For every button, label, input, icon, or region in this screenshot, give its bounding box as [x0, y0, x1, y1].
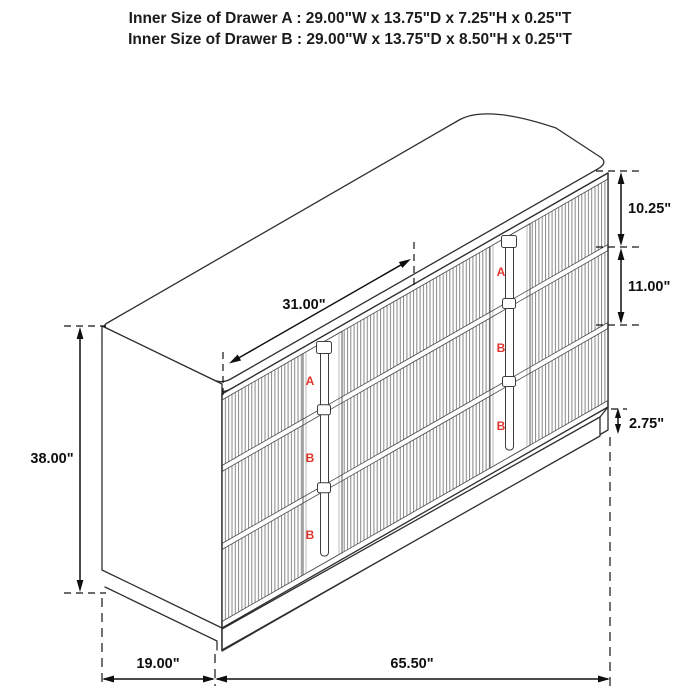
dim-total-width-label: 65.50": [390, 656, 433, 672]
product-dimension-diagram: A B B A B B 31.00" 38.00": [0, 0, 700, 700]
dim-base-height-label: 2.75": [629, 416, 664, 432]
dim-drawer-a-label: 10.25": [628, 201, 671, 217]
handle-joint: [503, 377, 516, 387]
dim-height: 38.00": [30, 326, 106, 593]
drawer-label-right-b2: B: [497, 419, 506, 433]
dim-drawer-b-label: 11.00": [628, 279, 670, 295]
handle-bar-left: [321, 350, 329, 556]
handle-cap: [502, 236, 517, 248]
handle-joint: [318, 483, 331, 493]
dim-top-width-label: 31.00": [282, 297, 325, 313]
handle-joint: [318, 405, 331, 415]
diagram-canvas: A B B A B B 31.00" 38.00": [0, 0, 700, 700]
handle-cap: [317, 342, 332, 354]
header: Inner Size of Drawer A : 29.00"W x 13.75…: [128, 10, 572, 48]
drawer-label-left-a: A: [306, 374, 315, 388]
dim-height-label: 38.00": [30, 451, 73, 467]
handle-bar-right: [506, 244, 514, 450]
dim-depth-label: 19.00": [136, 656, 179, 672]
drawer-label-left-b1: B: [306, 451, 315, 465]
header-drawer-b-size: Inner Size of Drawer B : 29.00"W x 13.75…: [128, 31, 572, 48]
header-drawer-a-size: Inner Size of Drawer A : 29.00"W x 13.75…: [129, 10, 572, 27]
drawer-label-left-b2: B: [306, 528, 315, 542]
drawer-label-right-a: A: [497, 265, 506, 279]
drawer-label-right-b1: B: [497, 341, 506, 355]
dim-base-height: 2.75": [611, 408, 664, 434]
handle-joint: [503, 299, 516, 309]
dresser-drawing: [102, 114, 608, 651]
